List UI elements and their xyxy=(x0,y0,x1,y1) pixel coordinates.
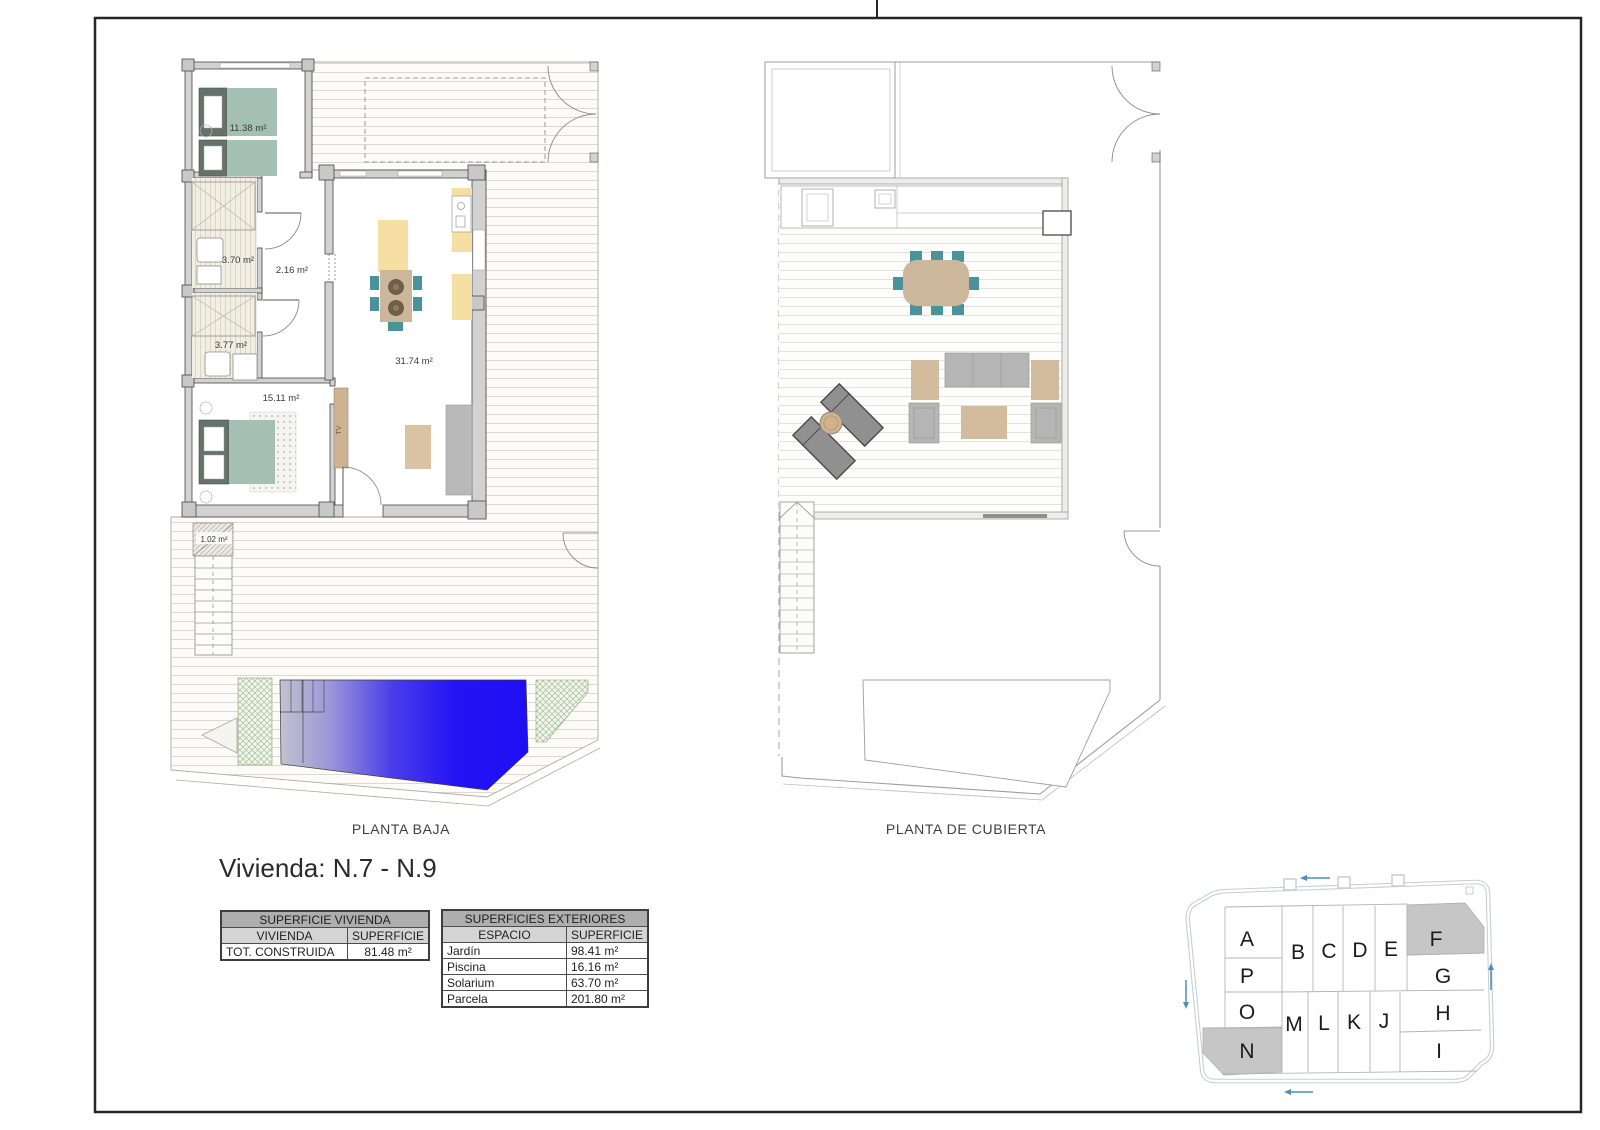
exterior-row-label: Piscina xyxy=(442,959,567,975)
armchair xyxy=(1031,360,1059,400)
plot-letter-P: P xyxy=(1240,965,1254,988)
plot-letter-L: L xyxy=(1318,1012,1330,1035)
plot-letter-H: H xyxy=(1435,1002,1450,1025)
plan-caption-roof: PLANTA DE CUBIERTA xyxy=(856,821,1076,837)
plan-caption-ground: PLANTA BAJA xyxy=(291,821,511,837)
room-area-label-porch: 1.02 m² xyxy=(200,535,227,544)
sink xyxy=(233,354,257,380)
plot-letter-I: I xyxy=(1436,1040,1442,1063)
drawing-sheet: TV xyxy=(0,0,1600,1130)
room-area-label-living: 31.74 m² xyxy=(395,356,433,367)
roof-kitchen-counter xyxy=(781,186,1071,235)
direction-arrow-bottom xyxy=(1284,1089,1291,1095)
surface-col1-header: VIVIENDA xyxy=(221,928,348,944)
room-area-label-bath1: 3.70 m² xyxy=(222,255,254,266)
direction-arrow-left xyxy=(1183,1002,1189,1009)
table-row: Jardín 98.41 m² xyxy=(442,943,648,959)
roof-door-jambs xyxy=(1152,62,1160,162)
plot-letter-D: D xyxy=(1352,939,1367,962)
surface-col2-header: SUPERFICIE xyxy=(348,928,430,944)
table-subheader-row: ESPACIO SUPERFICIE xyxy=(442,927,648,943)
roof-top-block xyxy=(765,62,900,178)
exterior-row-value: 201.80 m² xyxy=(567,991,649,1008)
roof-access-box xyxy=(1043,211,1071,235)
bathroom-2 xyxy=(192,293,257,380)
plot-letter-J: J xyxy=(1379,1010,1390,1033)
exterior-row-value: 16.16 m² xyxy=(567,959,649,975)
dwelling-title: Vivienda: N.7 - N.9 xyxy=(219,853,437,884)
ground-floor-plan: TV xyxy=(171,59,600,806)
roof-door-arcs xyxy=(1112,66,1160,566)
toilet xyxy=(197,238,223,262)
living-rug xyxy=(405,425,431,469)
exterior-table-header: SUPERFICIES EXTERIORES xyxy=(442,910,648,927)
sink xyxy=(197,266,221,284)
kitchen-island-and-table xyxy=(370,220,422,331)
surface-table-header: SUPERFICIE VIVIENDA xyxy=(221,911,429,928)
exterior-row-value: 63.70 m² xyxy=(567,975,649,991)
table-row: TOT. CONSTRUIDA 81.48 m² xyxy=(221,944,429,961)
table-header-row: SUPERFICIES EXTERIORES xyxy=(442,910,648,927)
tv-label: TV xyxy=(336,425,343,434)
roof-stairs xyxy=(780,502,814,653)
exterior-col2-header: SUPERFICIE xyxy=(567,927,649,943)
surface-row-value: 81.48 m² xyxy=(348,944,430,961)
exterior-row-label: Solarium xyxy=(442,975,567,991)
roof-plan xyxy=(765,62,1165,800)
plot-letter-N: N xyxy=(1239,1040,1254,1063)
direction-arrow-top xyxy=(1300,875,1307,881)
kitchen-counter xyxy=(452,188,472,320)
plot-letter-G: G xyxy=(1435,965,1451,988)
armchair xyxy=(911,360,939,400)
surface-row-label: TOT. CONSTRUIDA xyxy=(221,944,348,961)
table-row: Solarium 63.70 m² xyxy=(442,975,648,991)
plot-letter-F: F xyxy=(1430,928,1443,951)
exterior-table: SUPERFICIES EXTERIORES ESPACIO SUPERFICI… xyxy=(441,909,649,1008)
table-subheader-row: VIVIENDA SUPERFICIE xyxy=(221,928,429,944)
exterior-row-label: Jardín xyxy=(442,943,567,959)
site-plan: A P O N B C D E F G H I M L K J xyxy=(1183,875,1494,1095)
plot-letter-K: K xyxy=(1347,1011,1361,1034)
roof-pool-outline xyxy=(863,680,1110,787)
room-area-label-bath2: 3.77 m² xyxy=(215,340,247,351)
kitchen-sink xyxy=(452,196,471,232)
wall-dark-segment xyxy=(983,514,1047,518)
bedroom-2-bed xyxy=(199,402,296,503)
room-area-label-hall: 2.16 m² xyxy=(276,265,308,276)
tv-unit: TV xyxy=(334,388,348,468)
lounge-chair xyxy=(1031,403,1061,443)
sideboard xyxy=(446,405,472,495)
table-row: Parcela 201.80 m² xyxy=(442,991,648,1008)
toilet xyxy=(205,352,230,376)
plot-letter-B: B xyxy=(1291,941,1305,964)
room-area-label-bedroom1: 11.38 m² xyxy=(230,123,267,134)
exterior-col1-header: ESPACIO xyxy=(442,927,567,943)
plot-letter-E: E xyxy=(1384,938,1398,961)
lounge-chair xyxy=(909,403,939,443)
plot-letter-O: O xyxy=(1239,1001,1255,1024)
table-header-row: SUPERFICIE VIVIENDA xyxy=(221,911,429,928)
planting-strip-left xyxy=(238,678,272,765)
plot-letter-A: A xyxy=(1240,928,1254,951)
coffee-table xyxy=(961,406,1007,439)
table-row: Piscina 16.16 m² xyxy=(442,959,648,975)
bathroom-1 xyxy=(192,178,257,288)
plot-letter-M: M xyxy=(1285,1013,1303,1036)
exterior-row-label: Parcela xyxy=(442,991,567,1008)
sofa xyxy=(945,353,1029,387)
surface-table: SUPERFICIE VIVIENDA VIVIENDA SUPERFICIE … xyxy=(220,910,430,961)
room-area-label-bedroom2: 15.11 m² xyxy=(263,393,300,404)
plot-letter-C: C xyxy=(1321,940,1336,963)
side-table xyxy=(820,412,842,434)
exterior-row-value: 98.41 m² xyxy=(567,943,649,959)
dining-table xyxy=(903,260,969,306)
